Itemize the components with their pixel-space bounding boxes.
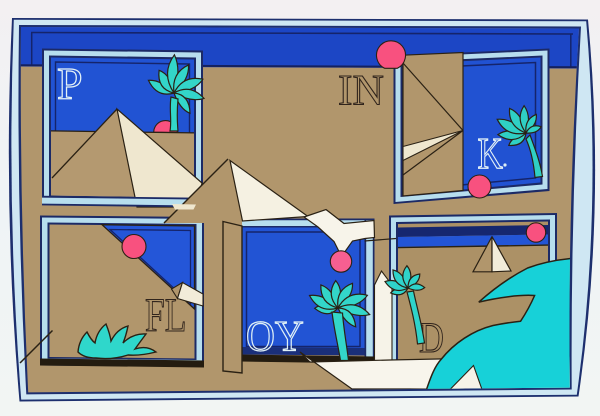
svg-text:OY: OY [246,312,304,360]
svg-text:FL: FL [145,289,186,342]
svg-text:P: P [57,58,83,109]
svg-text:IN: IN [338,67,384,115]
